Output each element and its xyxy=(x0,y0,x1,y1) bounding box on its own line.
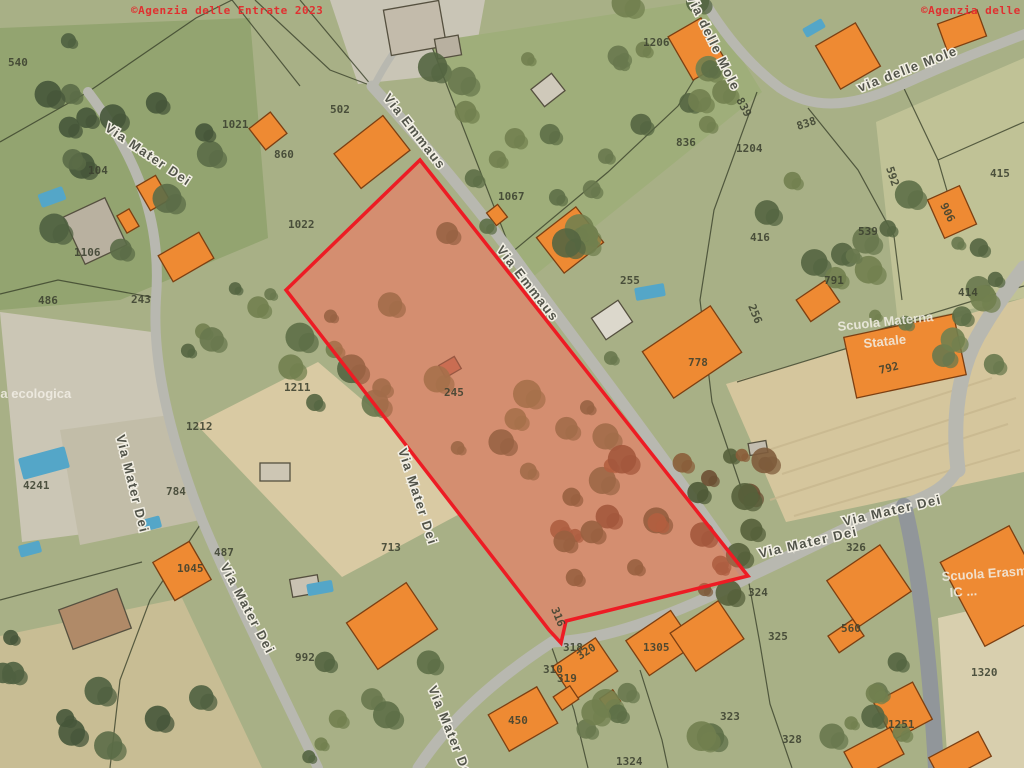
parcel-label: 415 xyxy=(990,167,1010,180)
cadastral-aerial-map: 5401021502860102210671206836120483883959… xyxy=(0,0,1024,768)
parcel-label: 539 xyxy=(858,225,878,238)
parcel-label: 323 xyxy=(720,710,740,723)
parcel-label: 487 xyxy=(214,546,234,559)
parcel-label: 414 xyxy=(958,286,978,299)
parcel-label: 1106 xyxy=(74,246,101,259)
parcel-label: 1204 xyxy=(736,142,763,155)
parcel-label: 1251 xyxy=(888,718,915,731)
parcel-label: 1067 xyxy=(498,190,525,203)
building xyxy=(260,463,290,481)
area-label: Isola ecologica xyxy=(0,386,72,401)
parcel-label: 1022 xyxy=(288,218,315,231)
parcel-label: 1045 xyxy=(177,562,204,575)
parcel-label: 486 xyxy=(38,294,58,307)
parcel-label: 1211 xyxy=(284,381,311,394)
copyright-label-right: ©Agenzia delle Entrate 2023 xyxy=(921,4,1024,17)
parcel-label: 713 xyxy=(381,541,401,554)
parcel-label: 1305 xyxy=(643,641,670,654)
parcel-label: 4241 xyxy=(23,479,50,492)
parcel-label: 326 xyxy=(846,541,866,554)
parcel-label: 1021 xyxy=(222,118,249,131)
parcel-label: 1320 xyxy=(971,666,998,679)
parcel-label: 324 xyxy=(748,586,768,599)
parcel-label: 416 xyxy=(750,231,770,244)
parcel-label: 328 xyxy=(782,733,802,746)
parcel-label: 560 xyxy=(841,622,861,635)
parcel-label: 104 xyxy=(88,164,108,177)
cadastral-map-viewport: 5401021502860102210671206836120483883959… xyxy=(0,0,1024,768)
parcel-label: 791 xyxy=(824,274,844,287)
parcel-label: 245 xyxy=(444,386,464,399)
parcel-label: 502 xyxy=(330,103,350,116)
parcel-label: 450 xyxy=(508,714,528,727)
parcel-label: 540 xyxy=(8,56,28,69)
parcel-label: 325 xyxy=(768,630,788,643)
parcel-label: 784 xyxy=(166,485,186,498)
parcel-label: 1212 xyxy=(186,420,213,433)
parcel-label: 1324 xyxy=(616,755,643,768)
parcel-label: 255 xyxy=(620,274,640,287)
copyright-label-left: ©Agenzia delle Entrate 2023 xyxy=(131,4,323,17)
parcel-label: 860 xyxy=(274,148,294,161)
parcel-label: 992 xyxy=(295,651,315,664)
parcel-label: 319 xyxy=(557,672,577,685)
parcel-label: 778 xyxy=(688,356,708,369)
parcel-label: 243 xyxy=(131,293,151,306)
area-label: IC ... xyxy=(949,583,977,600)
parcel-label: 1206 xyxy=(643,36,670,49)
parcel-label: 836 xyxy=(676,136,696,149)
